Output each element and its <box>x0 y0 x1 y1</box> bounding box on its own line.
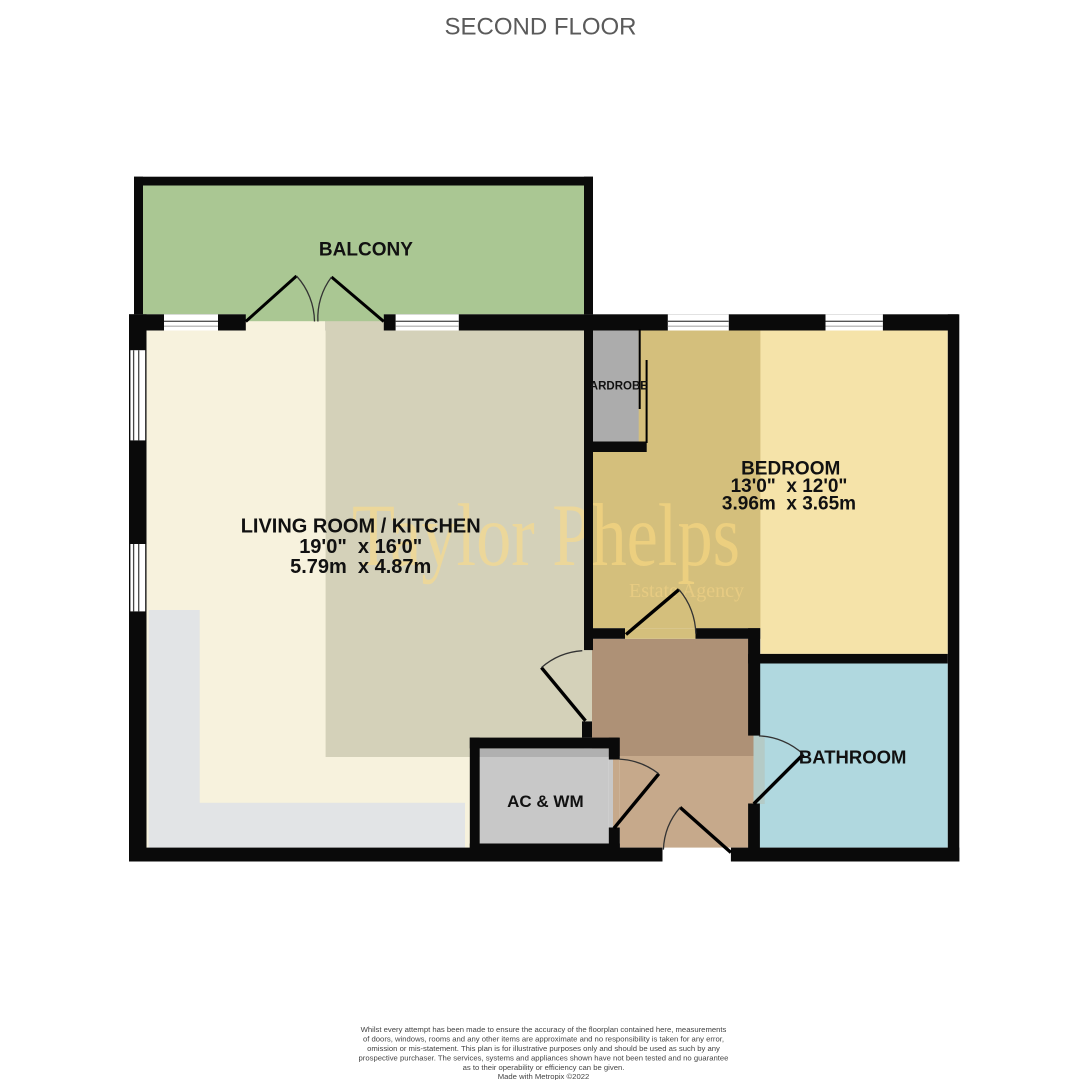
svg-text:Whilst every attempt has been: Whilst every attempt has been made to en… <box>361 1025 727 1034</box>
svg-text:19'0" x 16'0": 19'0" x 16'0" <box>299 536 422 558</box>
svg-text:LIVING ROOM / KITCHEN: LIVING ROOM / KITCHEN <box>241 515 481 537</box>
svg-text:omission or mis-statement. Thi: omission or mis-statement. This plan is … <box>367 1044 720 1053</box>
svg-text:BATHROOM: BATHROOM <box>799 747 907 768</box>
svg-text:3.96m x 3.65m: 3.96m x 3.65m <box>722 494 856 515</box>
svg-text:Made with Metropix ©2022: Made with Metropix ©2022 <box>498 1072 590 1080</box>
svg-text:of doors, windows, rooms and a: of doors, windows, rooms and any other i… <box>363 1034 724 1043</box>
svg-text:as to their operability or eff: as to their operability or efficiency ca… <box>463 1063 625 1072</box>
svg-text:Estate Agency: Estate Agency <box>629 580 744 602</box>
svg-text:ARDROBE: ARDROBE <box>590 381 648 393</box>
svg-text:5.79m x 4.87m: 5.79m x 4.87m <box>290 556 431 578</box>
svg-text:AC & WM: AC & WM <box>507 792 583 811</box>
svg-text:SECOND FLOOR: SECOND FLOOR <box>444 14 636 41</box>
svg-text:prospective purchaser. The ser: prospective purchaser. The services, sys… <box>359 1053 729 1062</box>
svg-text:BALCONY: BALCONY <box>319 240 413 261</box>
